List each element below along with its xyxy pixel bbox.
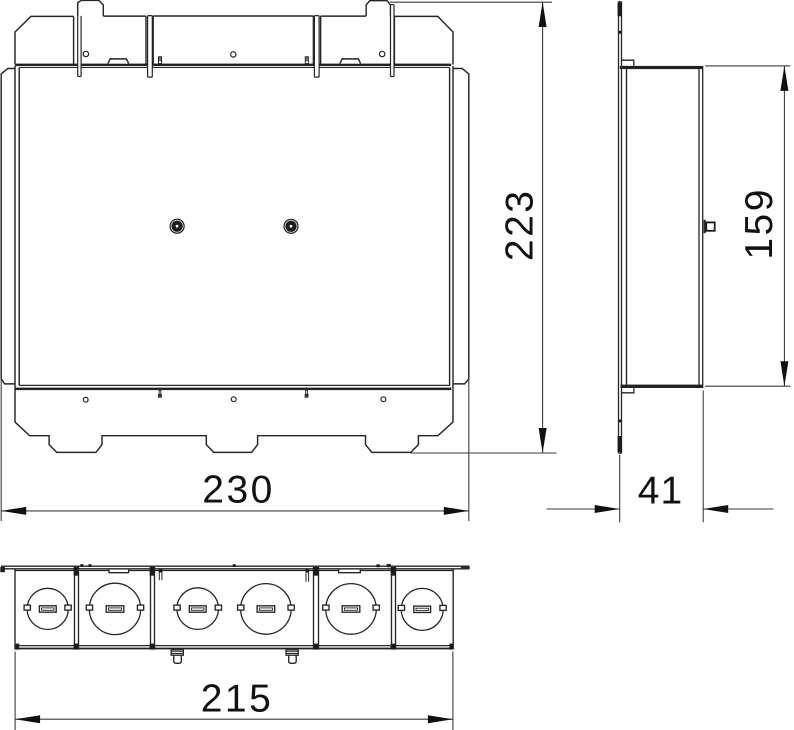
svg-text:159: 159 xyxy=(738,187,781,260)
svg-text:223: 223 xyxy=(499,189,542,262)
svg-text:215: 215 xyxy=(201,677,274,720)
svg-text:41: 41 xyxy=(638,469,683,512)
svg-text:230: 230 xyxy=(202,469,275,512)
